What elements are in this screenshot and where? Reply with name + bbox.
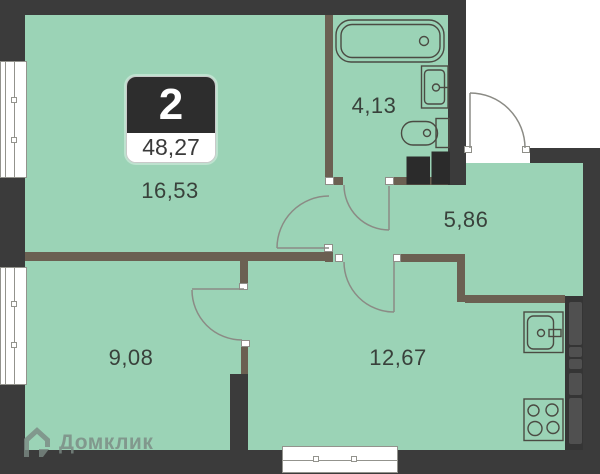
toilet-icon — [402, 119, 450, 148]
door-bathroom — [344, 185, 389, 230]
area-label-living-room: 16,53 — [141, 178, 199, 204]
kitchen-sink-icon — [524, 312, 563, 353]
door-entrance — [470, 93, 525, 148]
apartment-badge: 2 48,27 — [126, 76, 216, 163]
domclick-house-icon — [22, 427, 52, 459]
area-label-hallway: 5,86 — [444, 207, 489, 233]
door-kitchen — [344, 262, 394, 312]
area-label-bedroom: 9,08 — [109, 345, 154, 371]
plan-symbols — [0, 0, 600, 474]
bath-sink-icon — [422, 66, 449, 108]
rooms-count: 2 — [127, 77, 215, 133]
door-bedroom — [192, 289, 244, 340]
area-label-bathroom: 4,13 — [352, 93, 397, 119]
washing-machine-icon — [407, 152, 451, 185]
stove-icon — [524, 399, 563, 441]
watermark-brand: Домклик — [59, 431, 153, 455]
bathtub-icon — [336, 20, 444, 62]
total-area: 48,27 — [127, 133, 215, 162]
watermark: Домклик — [22, 427, 153, 459]
floor-plan: 2 48,27 16,53 4,13 5,86 9,08 12,67 Домкл… — [0, 0, 600, 474]
door-living-room — [277, 196, 329, 248]
area-label-kitchen-living: 12,67 — [369, 345, 427, 371]
